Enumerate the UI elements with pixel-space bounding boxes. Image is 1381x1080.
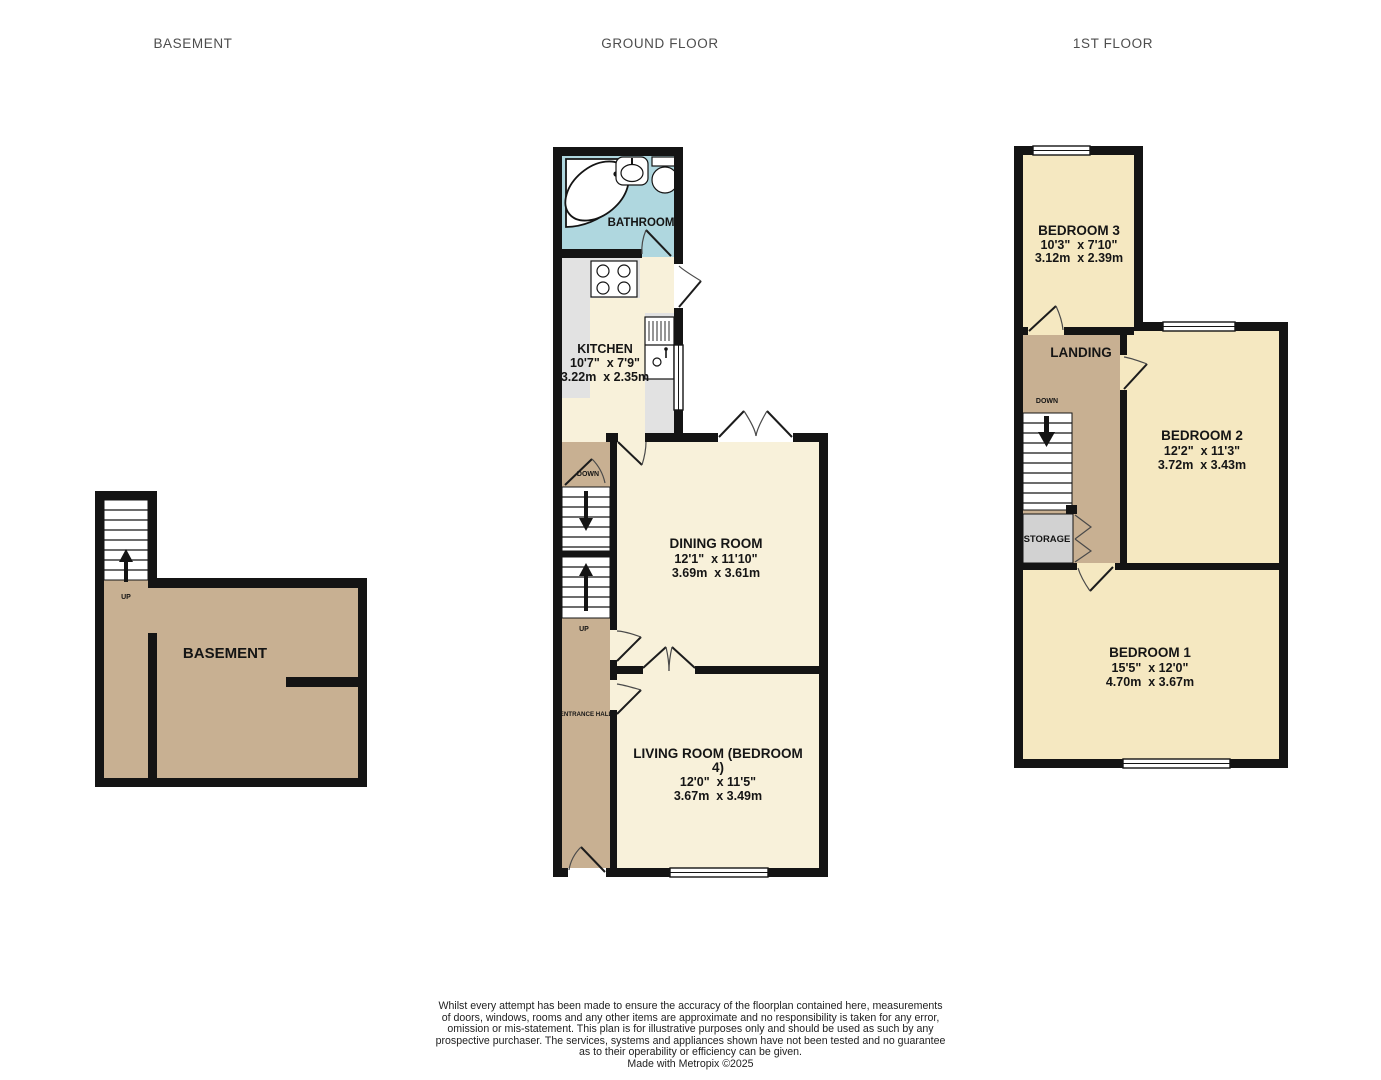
bathroom-sink-icon	[616, 157, 648, 185]
ground-floor-plan: BATHROOM KITCHEN 10'7" x 7'9" 3.22m x 2.…	[553, 147, 828, 877]
living-room-label-line1: LIVING ROOM (BEDROOM	[633, 746, 803, 761]
storage-label: STORAGE	[1024, 534, 1071, 545]
dining-french-doors	[718, 411, 793, 442]
entrance-hall	[562, 618, 610, 868]
kitchen-sink-icon	[645, 317, 674, 379]
kitchen-dining-wall	[645, 433, 674, 442]
landing-label: LANDING	[1050, 345, 1112, 360]
basement-wall-stub-vertical	[148, 633, 157, 778]
living-room-dims-imperial: 12'0" x 11'5"	[680, 775, 756, 789]
kitchen-side-door	[674, 264, 701, 308]
floorplan-page: BASEMENT GROUND FLOOR 1ST FLOOR	[0, 0, 1381, 1080]
bedroom3-dims-imperial: 10'3" x 7'10"	[1041, 238, 1118, 252]
bedroom2-label: BEDROOM 2	[1161, 428, 1243, 443]
kitchen-window	[674, 345, 683, 410]
bedroom1-dims-imperial: 15'5" x 12'0"	[1112, 661, 1189, 675]
bedroom3-dims-metric: 3.12m x 2.39m	[1035, 251, 1123, 265]
entrance-hall-label: ENTRANCE HALL	[560, 711, 613, 718]
bedroom2-dims-imperial: 12'2" x 11'3"	[1164, 444, 1240, 458]
bedroom1-label: BEDROOM 1	[1109, 645, 1191, 660]
stair-wall-stub	[1066, 505, 1077, 514]
bedroom3-label: BEDROOM 3	[1038, 223, 1120, 238]
ground-floor-stairs	[562, 487, 610, 618]
first-floor-stairs	[1023, 413, 1072, 510]
floorplan-drawing: UP BASEMENT	[0, 0, 1381, 1080]
first-down-label: DOWN	[1036, 398, 1058, 405]
living-room-label-line2: 4)	[712, 760, 724, 775]
metropix-credit: Made with Metropix ©2025	[0, 1059, 1381, 1071]
living-room-window	[670, 868, 768, 877]
bedroom2-window	[1163, 322, 1235, 331]
disclaimer: Whilst every attempt has been made to en…	[0, 1001, 1381, 1071]
first-floor-plan: BEDROOM 3 10'3" x 7'10" 3.12m x 2.39m LA…	[1014, 146, 1288, 768]
dining-room-dims-metric: 3.69m x 3.61m	[672, 566, 760, 580]
kitchen-label: KITCHEN	[577, 342, 633, 356]
basement-stairs	[104, 500, 148, 582]
bedroom3-window	[1033, 146, 1090, 155]
dining-room-dims-imperial: 12'1" x 11'10"	[674, 552, 757, 566]
bedroom1-window	[1123, 759, 1230, 768]
basement-plan: UP BASEMENT	[95, 491, 367, 787]
ground-up-label: UP	[579, 626, 589, 633]
kitchen-dims-metric: 3.22m x 2.35m	[561, 370, 649, 384]
basement-room-label: BASEMENT	[183, 645, 267, 662]
kitchen-dining-wall	[606, 433, 618, 442]
hob-icon	[591, 261, 637, 297]
stair-divider	[562, 551, 610, 557]
bedroom1-top-wall	[1014, 563, 1288, 570]
basement-up-label: UP	[121, 594, 131, 601]
bathroom-kitchen-wall	[562, 249, 642, 258]
basement-top-wall	[148, 578, 358, 588]
bedroom1-dims-metric: 4.70m x 3.67m	[1106, 675, 1194, 689]
living-room-dims-metric: 3.67m x 3.49m	[674, 789, 762, 803]
basement-wall-stub-horizontal	[286, 677, 358, 687]
dining-room-label: DINING ROOM	[670, 536, 763, 551]
bedroom2-dims-metric: 3.72m x 3.43m	[1158, 458, 1246, 472]
disclaimer-line: Whilst every attempt has been made to en…	[0, 1001, 1381, 1013]
ground-down-label: DOWN	[577, 471, 599, 478]
kitchen-dims-imperial: 10'7" x 7'9"	[570, 356, 640, 370]
bathroom-label: BATHROOM	[608, 217, 675, 229]
